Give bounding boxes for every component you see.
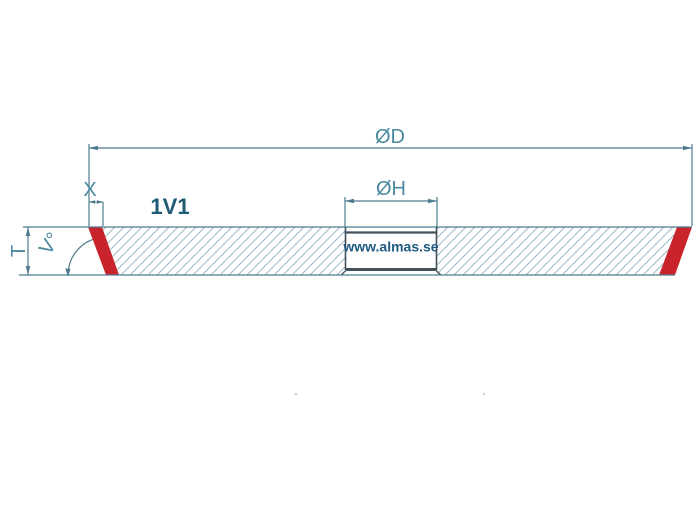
arrowhead-left-icon [345, 199, 354, 204]
thickness-label: T [8, 245, 30, 257]
diameter-label: ØD [375, 126, 405, 148]
hole-label: ØH [376, 178, 406, 200]
wheel-type-label: 1V1 [150, 194, 189, 219]
arrowhead-right-icon [683, 146, 692, 151]
dimension-angle: V° [35, 229, 93, 277]
faint-dots [295, 393, 486, 396]
dimension-edge-width: X [83, 179, 103, 226]
dot-icon [295, 393, 298, 396]
arrowhead-up-icon [26, 227, 31, 236]
dimension-hole: ØH [345, 178, 437, 227]
dot-icon [483, 393, 486, 396]
dimension-thickness: T [8, 227, 30, 275]
arrowhead-right-icon [97, 200, 103, 204]
watermark-text: www.almas.se [342, 239, 438, 255]
arrowhead-left-icon [89, 146, 98, 151]
angle-label: V° [35, 229, 65, 259]
edge-width-label: X [83, 179, 96, 201]
arrowhead-down-icon [26, 266, 31, 275]
drawing-svg: ØD X ØH T V° 1V1 www.almas.se [0, 0, 700, 525]
hatch-right-segment [437, 227, 677, 275]
wheel-profile-drawing: ØD X ØH T V° 1V1 www.almas.se [0, 0, 700, 525]
arrowhead-right-icon [428, 199, 437, 204]
hatch-left-segment [102, 227, 345, 275]
angle-arc [68, 239, 93, 275]
